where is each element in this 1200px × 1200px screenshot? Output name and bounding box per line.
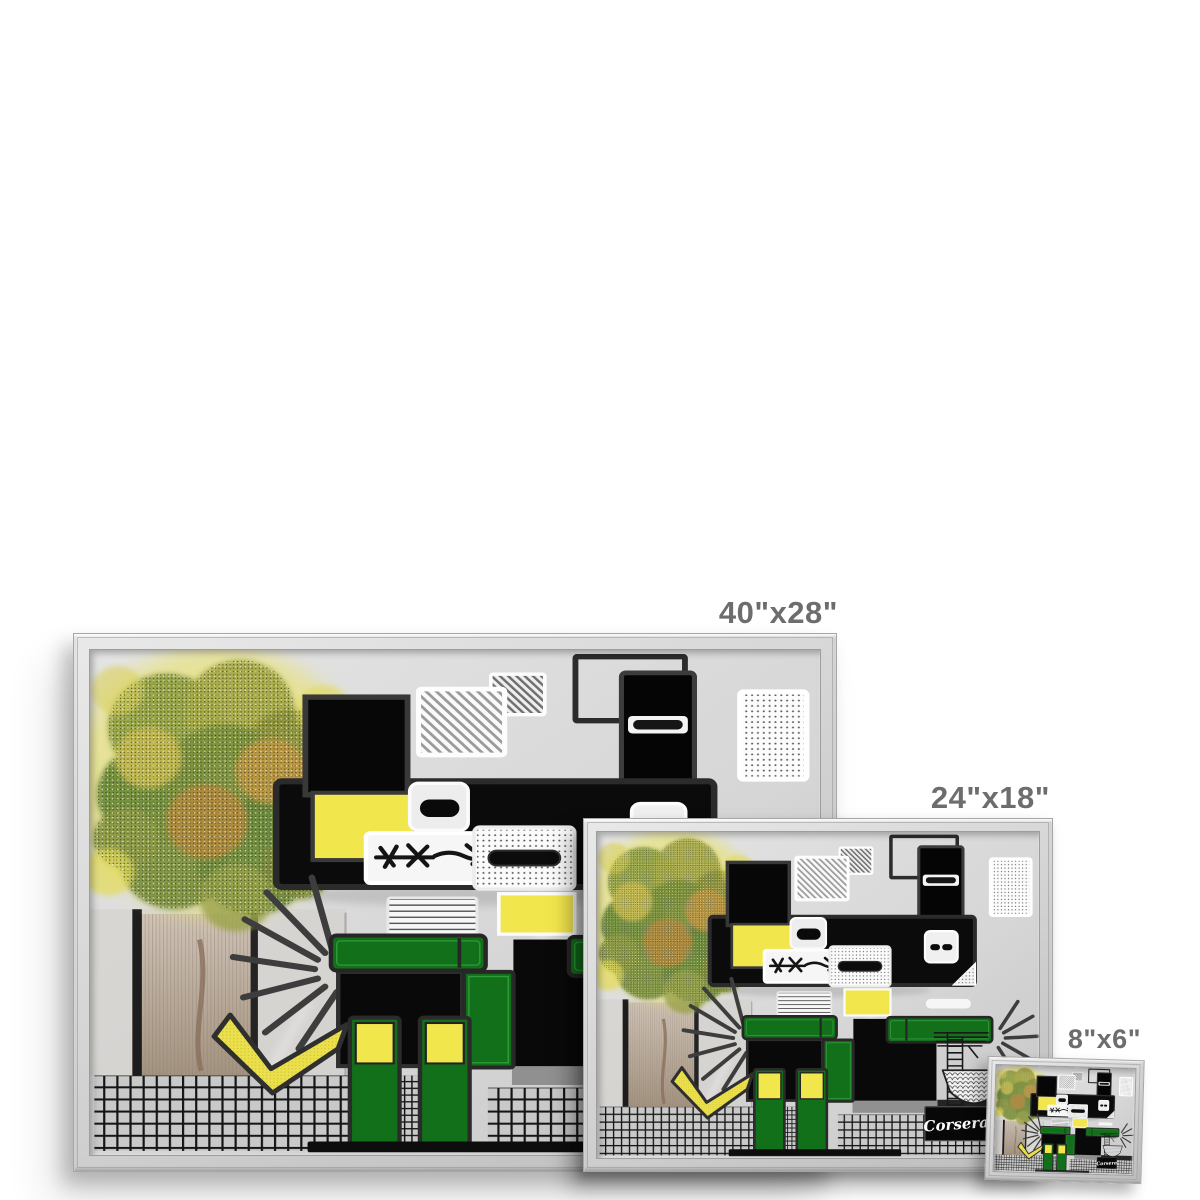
size-label-40x28: 40"x28" — [538, 597, 838, 628]
artwork-print-24x18 — [597, 832, 1039, 1158]
frame-24x18 — [583, 818, 1053, 1172]
artwork-print-8x6 — [994, 1065, 1136, 1175]
art-canvas-8x6 — [993, 1064, 1137, 1176]
frame-8x6 — [984, 1056, 1144, 1184]
art-canvas-24x18 — [596, 831, 1040, 1159]
